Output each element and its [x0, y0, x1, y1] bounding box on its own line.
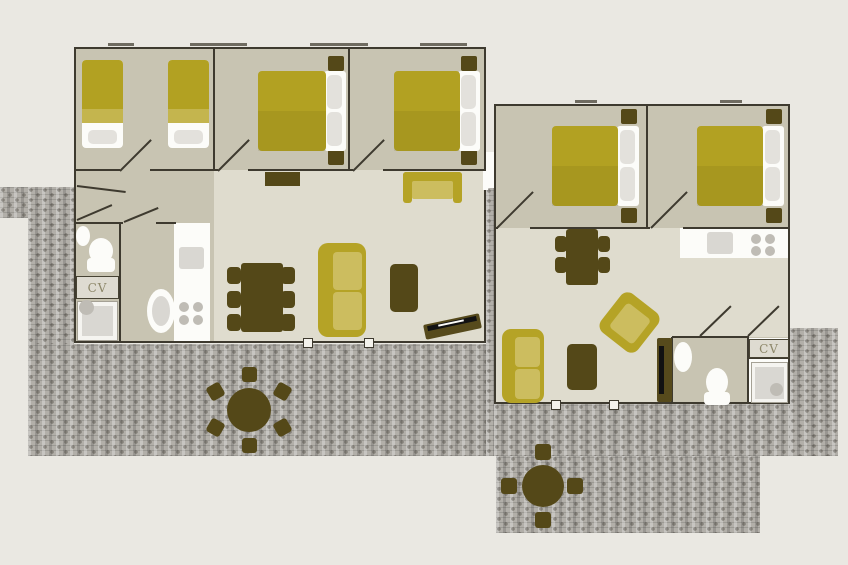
double-bed-2-shade [394, 111, 460, 151]
unitB-burner-4 [765, 246, 775, 256]
unitB-dining-chair-2 [555, 257, 567, 273]
unitA-window-2 [190, 43, 247, 46]
unitB-double-bed-2-nightstand-top [766, 109, 782, 124]
unitA-hall-floor [74, 170, 214, 223]
double-bed-2-pillow-1 [461, 75, 476, 109]
unitB-double-bed-1-nightstand-top [621, 109, 637, 124]
unitB-wall-partition [646, 104, 648, 229]
unitB-double-bed-2-pillow-1 [765, 130, 780, 164]
terrace-table-right [522, 465, 564, 507]
unitB-sofa-cushion-1 [515, 337, 540, 367]
unitA-wall-partition-1 [213, 47, 215, 171]
unitB-dining-table [566, 229, 598, 285]
unitA-window-4 [420, 43, 467, 46]
unitB-double-bed-1-pillow-2 [620, 167, 635, 201]
unitA-window-1 [108, 43, 134, 46]
unitA-threshold-marker-1 [303, 338, 313, 348]
unitB-burner-1 [751, 234, 761, 244]
unitB-wall-right [788, 104, 790, 404]
unitB-double-bed-2-pillow-2 [765, 167, 780, 201]
unitB-cv-cabinet: CV [749, 339, 789, 358]
unitB-double-bed-2-nightstand-bottom [766, 208, 782, 223]
unitB-burner-2 [765, 234, 775, 244]
unitA-sofa-cushion-1 [333, 252, 362, 290]
double-bed-1-pillow-1 [327, 75, 342, 109]
unitA-wall-right [484, 47, 486, 343]
unitB-dining-chair-1 [555, 236, 567, 252]
unitB-toilet-base [704, 392, 730, 405]
terrace-right-strip [790, 328, 838, 456]
unitA-bathroom-sink [76, 226, 90, 246]
unitA-wall-bedrooms-c [248, 169, 353, 171]
terrace-left-chair-4 [242, 438, 257, 453]
single-bed-1-blanket [82, 60, 123, 114]
unitB-sofa-cushion-2 [515, 369, 540, 399]
single-bed-2-fold [168, 109, 209, 123]
unitB-coffee-table [567, 344, 597, 390]
unitA-wall-top [74, 47, 486, 49]
unitA-wall-bedrooms-d [383, 169, 486, 171]
floorplan-canvas: CVCV [0, 0, 848, 565]
unitA-wall-bath-top [74, 222, 123, 224]
double-bed-2-pillow-2 [461, 112, 476, 146]
unitB-counter-appliance [707, 232, 733, 254]
unitA-dining-chair-5 [281, 291, 295, 308]
unitB-wall-bedrooms-c [683, 227, 790, 229]
unitB-window-1 [575, 100, 597, 103]
unitB-bathroom-sink [674, 342, 692, 372]
single-bed-2-pillow [174, 130, 203, 144]
double-bed-1-nightstand-top [328, 56, 344, 71]
unitA-dining-chair-4 [281, 267, 295, 284]
unitA-threshold-marker-2 [364, 338, 374, 348]
single-bed-1-fold [82, 109, 123, 123]
unitA-door-opening-right [483, 171, 488, 190]
terrace-right-chair-4 [501, 478, 517, 494]
unitB-threshold-marker-1 [551, 400, 561, 410]
unitA-dresser [265, 172, 300, 186]
unitA-window-3 [310, 43, 368, 46]
unitA-dining-chair-2 [227, 291, 241, 308]
unitA-burner-4 [193, 315, 203, 325]
unitA-sink-basin-inner [152, 296, 170, 326]
unitA-dining-table [241, 263, 283, 332]
unitA-dining-chair-6 [281, 314, 295, 331]
terrace-path-between-units [486, 188, 494, 456]
single-bed-1-pillow [88, 130, 117, 144]
unitA-cv-cabinet: CV [76, 276, 119, 299]
terrace-table-left [227, 388, 271, 432]
unitB-double-bed-1-nightstand-bottom [621, 208, 637, 223]
unitB-shower-drain [770, 383, 783, 396]
double-bed-2-nightstand-bottom [461, 150, 477, 165]
unitA-wall-bedrooms-b [150, 169, 218, 171]
unitA-wall-partition-2 [348, 47, 350, 171]
unitB-window-2 [720, 100, 742, 103]
unitA-sofa-cushion-2 [333, 292, 362, 330]
unitB-wall-bath-top [672, 336, 749, 338]
unitA-toilet-base [87, 258, 115, 272]
unitA-bench-arm-left [403, 172, 412, 203]
unitB-dining-chair-3 [598, 236, 610, 252]
unitA-wall-bath-right [119, 222, 121, 343]
terrace-right-chair-2 [567, 478, 583, 494]
unitB-burner-3 [751, 246, 761, 256]
unitB-wall-top [494, 104, 790, 106]
unitA-wall-bedrooms-a [74, 169, 120, 171]
unitA-wall-kitchen-top [156, 222, 176, 224]
terrace-right-chair-1 [535, 444, 551, 460]
double-bed-1-pillow-2 [327, 112, 342, 146]
unitA-shower-drain [79, 300, 94, 315]
terrace-path-left [28, 187, 74, 345]
double-bed-2-nightstand-top [461, 56, 477, 71]
unitB-double-bed-2-shade [697, 166, 763, 206]
terrace-right-chair-3 [535, 512, 551, 528]
unitA-wall-bottom [74, 341, 486, 343]
double-bed-1-nightstand-bottom [328, 150, 344, 165]
unitB-threshold-marker-2 [609, 400, 619, 410]
unitA-burner-3 [179, 315, 189, 325]
unitA-dining-chair-3 [227, 314, 241, 331]
unitB-tv-screen [659, 346, 664, 394]
unitA-coffee-table [390, 264, 418, 312]
unitB-double-bed-1-shade [552, 166, 618, 206]
unitB-dining-chair-4 [598, 257, 610, 273]
unitA-dining-chair-1 [227, 267, 241, 284]
unitA-bench-arm-right [453, 172, 462, 203]
unitB-wall-left [494, 104, 496, 404]
unitA-counter-appliance [179, 247, 204, 269]
unitA-burner-1 [179, 302, 189, 312]
terrace-left-chair-1 [242, 367, 257, 382]
unitB-double-bed-1-pillow-1 [620, 130, 635, 164]
unitA-bench-cushion [412, 181, 453, 199]
double-bed-1-shade [258, 111, 326, 151]
unitA-burner-2 [193, 302, 203, 312]
single-bed-2-blanket [168, 60, 209, 114]
